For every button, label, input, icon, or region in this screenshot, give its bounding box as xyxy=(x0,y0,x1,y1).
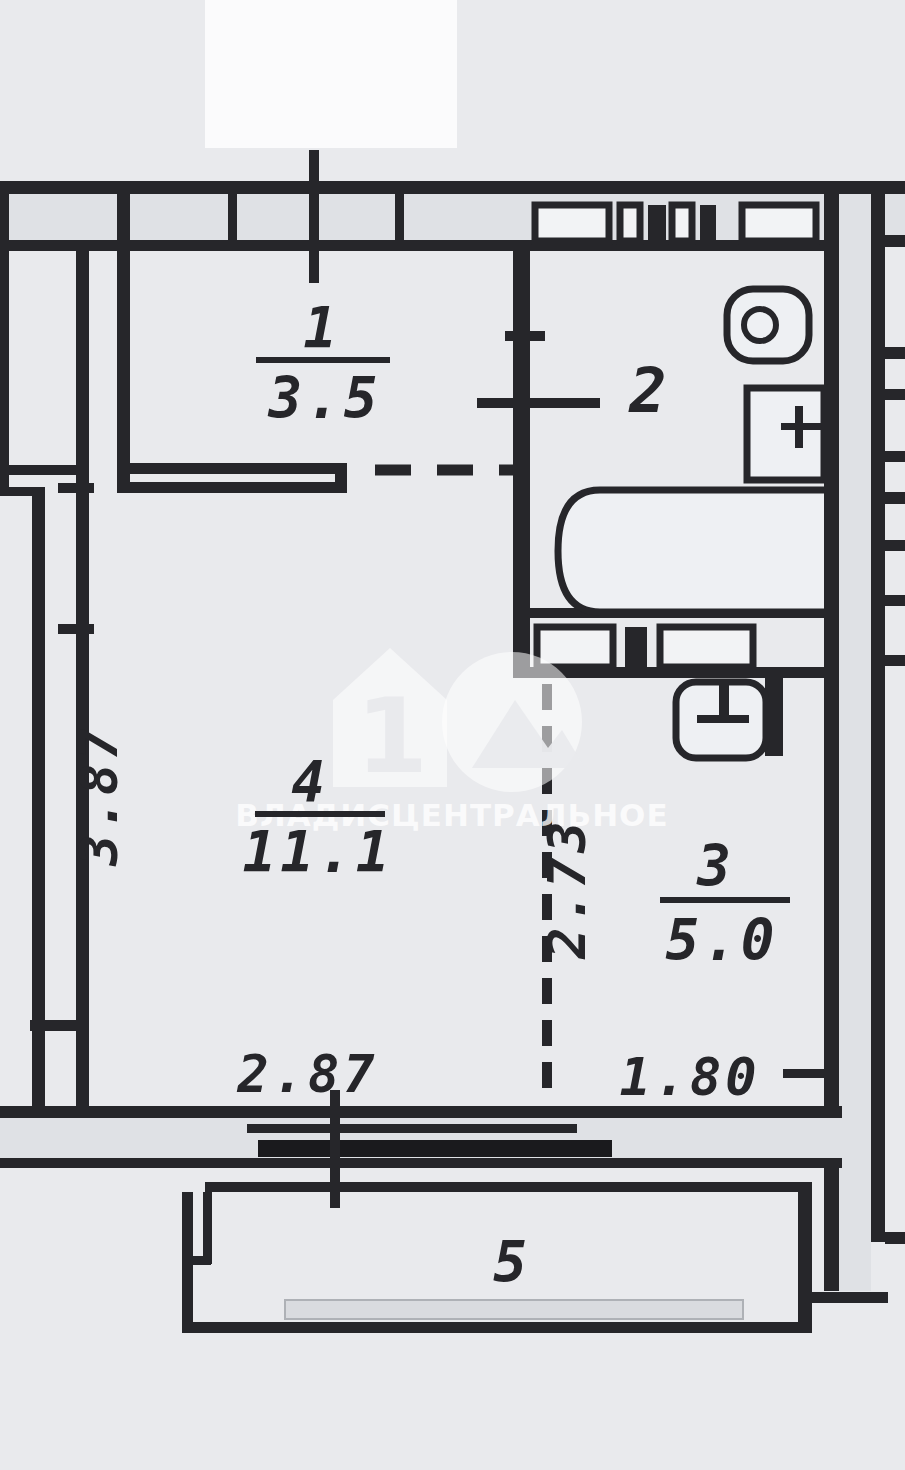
balcony-railing xyxy=(285,1300,743,1319)
bathroom-fixtures xyxy=(558,289,824,758)
room-5-number: 5 xyxy=(493,1230,531,1295)
cistern-icon xyxy=(747,388,824,480)
blank-patch xyxy=(205,0,457,148)
dimension-bottom-right: 1.80 xyxy=(619,1047,760,1107)
room-4-area: 11.1 xyxy=(243,820,394,885)
window xyxy=(258,1140,612,1157)
dimension-bottom-left: 2.87 xyxy=(236,1044,378,1104)
toilet-icon xyxy=(727,289,809,361)
room-2-number: 2 xyxy=(628,354,666,427)
bathtub-icon xyxy=(558,490,824,612)
floor-plan-page: 1 ВЛАДИСЦЕНТРАЛЬНОЕ 1 3.5 2 3 5.0 4 11.1… xyxy=(0,0,905,1470)
room-3-number: 3 xyxy=(696,834,735,899)
balcony xyxy=(182,1182,888,1333)
room-1-area: 3.5 xyxy=(267,366,381,431)
watermark-digit: 1 xyxy=(356,675,428,797)
room-3-area: 5.0 xyxy=(665,908,778,973)
room-4-number: 4 xyxy=(291,750,329,815)
floor-plan-drawing: 1 ВЛАДИСЦЕНТРАЛЬНОЕ 1 3.5 2 3 5.0 4 11.1… xyxy=(0,0,905,1470)
dimension-inner: 2.73 xyxy=(537,817,597,959)
dimension-left: 3.87 xyxy=(69,724,129,866)
room-1-number: 1 xyxy=(303,296,341,361)
